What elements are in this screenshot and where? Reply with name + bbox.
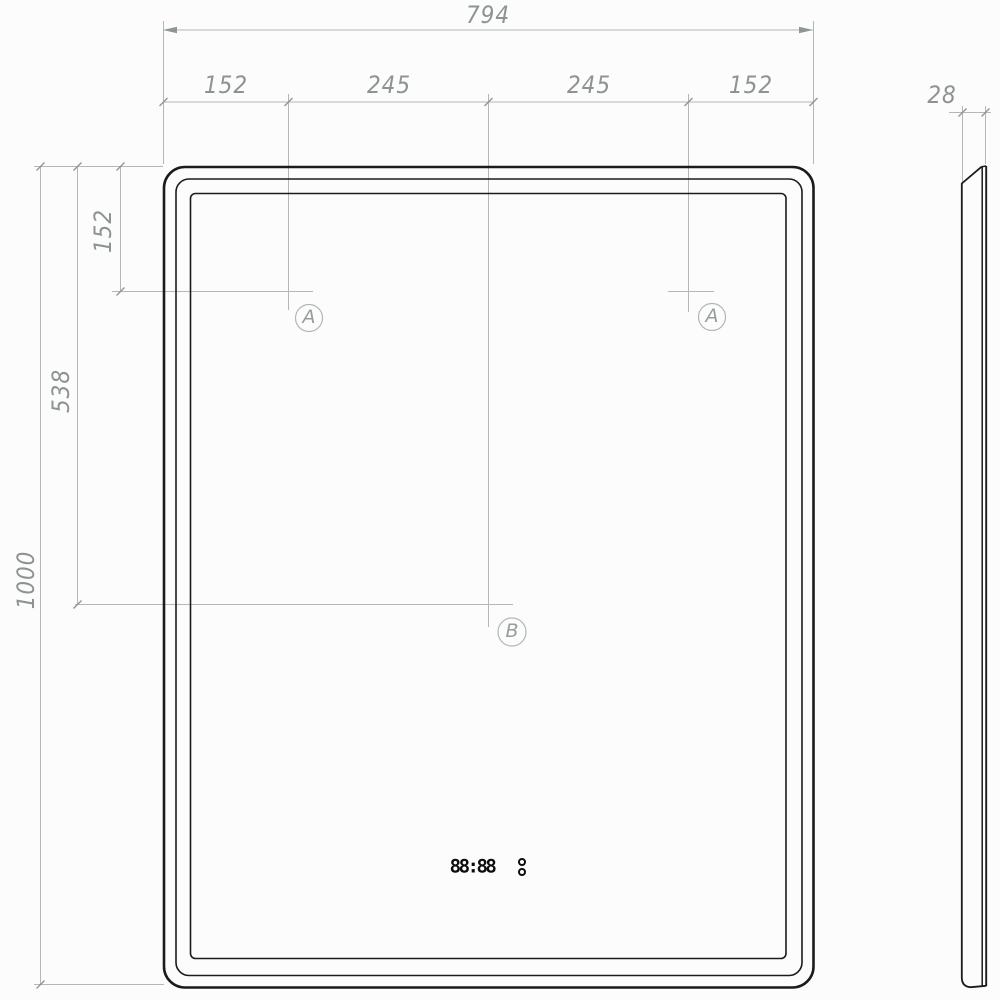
drawing-linework <box>0 0 1000 1000</box>
marker-label-a-left: A <box>303 308 316 327</box>
side-profile-top-edge <box>982 166 987 167</box>
dim-text-display-offset: 538 <box>49 369 73 413</box>
arrow-right-icon <box>799 27 813 33</box>
dim-text-depth: 28 <box>927 83 956 107</box>
mirror-side-view <box>962 166 986 987</box>
dim-ticks <box>37 98 990 989</box>
dim-text-overall-height: 1000 <box>14 551 38 610</box>
touch-sensor-dot-icon <box>518 858 526 866</box>
dim-text-hole-offset: 152 <box>91 209 115 253</box>
clock-display: 88:88 <box>450 858 495 877</box>
dim-text-seg-1: 152 <box>204 73 248 97</box>
dimension-lines <box>34 21 991 985</box>
dim-text-overall-width: 794 <box>466 3 510 27</box>
dim-text-seg-3: 245 <box>567 73 611 97</box>
marker-circles <box>296 304 726 647</box>
dim-text-seg-2: 245 <box>367 73 411 97</box>
technical-drawing-canvas: 794 152 245 245 152 152 538 1000 28 A A … <box>0 0 1000 1000</box>
marker-label-a-right: A <box>706 307 719 326</box>
touch-sensor-dot-icon <box>518 868 526 876</box>
arrow-left-icon <box>163 27 177 33</box>
dim-text-seg-4: 152 <box>729 73 773 97</box>
marker-label-b: B <box>505 622 518 641</box>
